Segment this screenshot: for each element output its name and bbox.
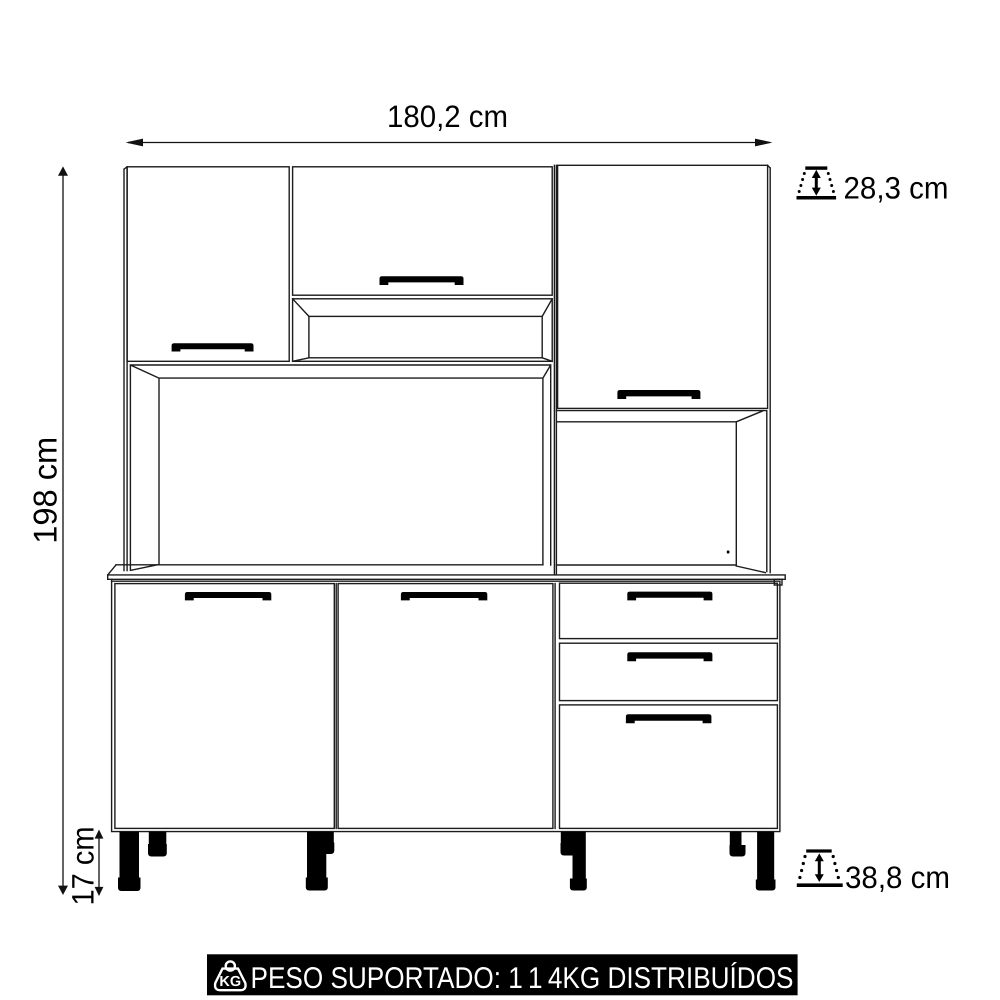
svg-text:38,8 cm: 38,8 cm [845,860,950,895]
svg-text:PESO SUPORTADO: 1 1 4KG DISTRI: PESO SUPORTADO: 1 1 4KG DISTRIBUÍDOS [251,961,794,995]
svg-text:KG: KG [219,974,241,990]
svg-text:28,3 cm: 28,3 cm [844,170,949,205]
svg-text:17 cm: 17 cm [66,827,101,906]
svg-text:198 cm: 198 cm [27,437,64,544]
svg-text:180,2 cm: 180,2 cm [387,99,508,134]
